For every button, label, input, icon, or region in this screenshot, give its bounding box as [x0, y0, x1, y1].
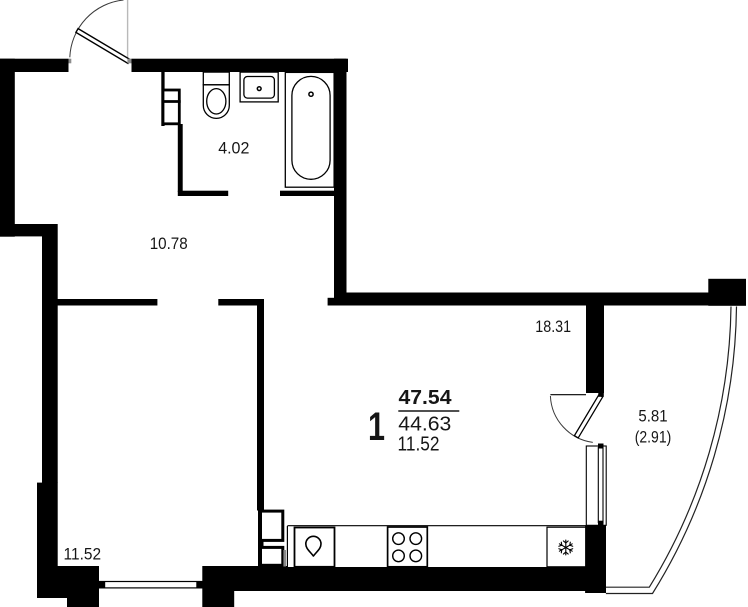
svg-text:10.78: 10.78: [150, 234, 188, 253]
svg-text:1: 1: [368, 405, 385, 449]
svg-text:4.02: 4.02: [218, 138, 249, 157]
svg-text:44.63: 44.63: [398, 414, 451, 436]
svg-text:47.54: 47.54: [399, 387, 453, 409]
svg-text:(2.91): (2.91): [635, 428, 672, 447]
svg-text:5.81: 5.81: [638, 407, 667, 426]
svg-text:18.31: 18.31: [535, 317, 571, 336]
svg-text:11.52: 11.52: [398, 434, 440, 456]
svg-text:11.52: 11.52: [64, 545, 102, 564]
